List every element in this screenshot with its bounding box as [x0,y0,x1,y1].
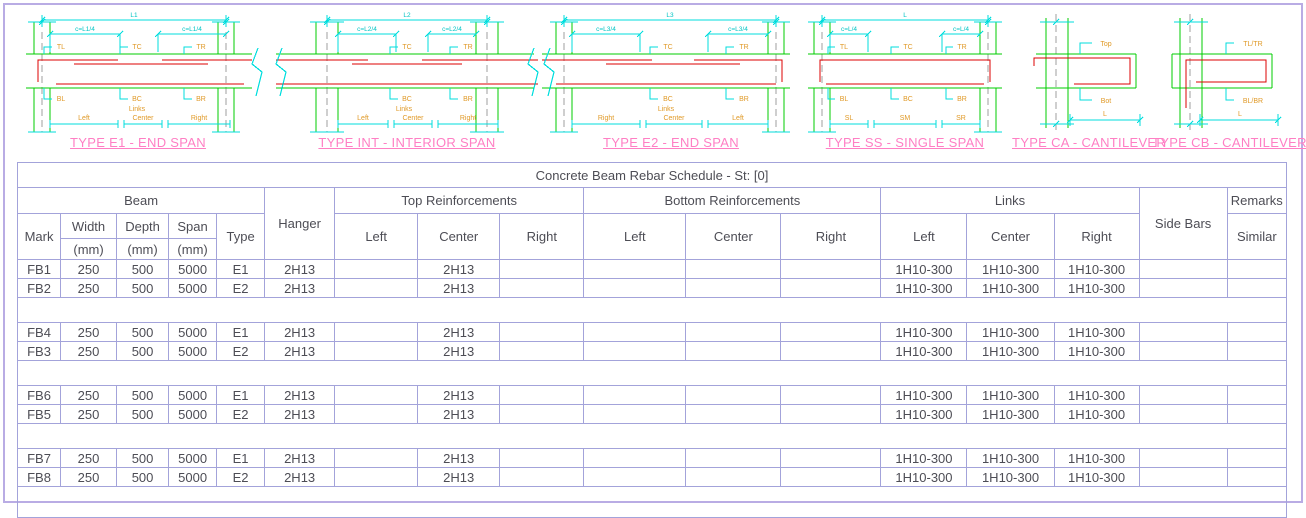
label-bot-center: BC [402,96,412,103]
cell-top-center: 2H13 [418,260,500,279]
beam-diagram-ca: Top Bot L TYPE CA - CANTILEVER [1012,8,1148,150]
cell-bot-right [781,468,881,487]
cell-links-right: 1H10-300 [1054,260,1139,279]
label-top-right: TR [196,44,205,51]
cell-bot-center [686,260,781,279]
cell-similar [1227,405,1286,424]
cell-span: 5000 [169,449,217,468]
cell-side-bars [1139,279,1227,298]
cell-top-left [335,260,418,279]
cell-top-right [500,405,584,424]
column-header-depth: Depth [117,214,169,239]
cell-span: 5000 [169,468,217,487]
cell-mark: FB5 [18,405,61,424]
spacer-row [18,424,1287,449]
cell-bot-center [686,342,781,361]
cell-hanger: 2H13 [265,468,335,487]
column-header-side-bars: Side Bars [1139,188,1227,260]
cell-type: E2 [217,342,265,361]
beam-drawing-e2: TC TR BC BR Links Right Center Left L3 c… [540,8,802,134]
concrete-outline [1036,18,1136,128]
column-header-hanger: Hanger [265,188,335,260]
rebar-labels: TC TR BC BR Links Left Center Right [357,44,476,122]
cell-top-right [500,449,584,468]
cell-bot-center [686,279,781,298]
cell-links-center: 1H10-300 [967,386,1054,405]
label-cut-right: c=L3/4 [728,26,748,33]
label-span: L3 [666,12,674,19]
spacer-row [18,361,1287,386]
beam-type-diagrams: TL TC TR BL BC BR Links Left Center Righ… [0,6,1306,158]
spacer-cell [18,298,1287,323]
beam-drawing-ca: Top Bot L [1012,8,1148,134]
cell-type: E1 [217,260,265,279]
label-top-right: TR [957,44,966,51]
table-row: FB82505005000E22H132H131H10-3001H10-3001… [18,468,1287,487]
cell-span: 5000 [169,342,217,361]
cell-bot-left [584,449,686,468]
cell-depth: 500 [117,260,169,279]
label-zone-right: Left [732,115,744,122]
cell-span: 5000 [169,279,217,298]
cell-side-bars [1139,468,1227,487]
cell-mark: FB7 [18,449,61,468]
cell-depth: 500 [117,342,169,361]
cell-top-center: 2H13 [418,279,500,298]
rebar-labels: Top Bot L [1100,41,1111,118]
cell-links-center: 1H10-300 [967,405,1054,424]
cell-mark: FB6 [18,386,61,405]
column-header-bottom-left: Left [584,214,686,260]
diagram-caption-int: TYPE INT - INTERIOR SPAN [272,135,542,150]
cell-side-bars [1139,386,1227,405]
cell-hanger: 2H13 [265,323,335,342]
cell-depth: 500 [117,279,169,298]
column-header-top-center: Center [418,214,500,260]
column-header-links-center: Center [967,214,1054,260]
rebar-labels: TC TR BC BR Links Right Center Left [598,44,749,122]
break-mark [528,48,538,96]
cell-top-left [335,449,418,468]
cell-links-right: 1H10-300 [1054,405,1139,424]
cell-hanger: 2H13 [265,260,335,279]
cell-side-bars [1139,323,1227,342]
cell-hanger: 2H13 [265,279,335,298]
cell-top-center: 2H13 [418,405,500,424]
cell-mark: FB1 [18,260,61,279]
column-header-bottom-center: Center [686,214,781,260]
label-zone-center: SM [900,115,911,122]
cell-width: 250 [61,449,117,468]
label-top: Top [1100,41,1111,48]
dimension-labels: L3 c=L3/4 c=L3/4 [596,12,748,33]
label-bot-left: BL [57,96,66,103]
cell-links-right: 1H10-300 [1054,386,1139,405]
cell-top-right [500,386,584,405]
cell-width: 250 [61,468,117,487]
label-top-left: TL [840,44,848,51]
label-bot-center: BC [132,96,142,103]
table-row: FB42505005000E12H132H131H10-3001H10-3001… [18,323,1287,342]
cell-bot-center [686,323,781,342]
label-span: L [1103,111,1107,118]
label-zone-left: SL [845,115,854,122]
cell-depth: 500 [117,405,169,424]
cell-top-center: 2H13 [418,342,500,361]
spacer-row [18,487,1287,518]
beam-diagram-cb: TL/TR BL/BR L TYPE CB - CANTILEVER [1152,8,1300,150]
cell-mark: FB3 [18,342,61,361]
cell-hanger: 2H13 [265,342,335,361]
cell-type: E1 [217,323,265,342]
cell-mark: FB8 [18,468,61,487]
cell-links-right: 1H10-300 [1054,342,1139,361]
label-zone-right: Right [191,115,207,122]
cell-top-left [335,405,418,424]
diagram-caption-ca: TYPE CA - CANTILEVER [1012,135,1148,150]
beam-diagram-ss: TL TC TR BL BC BR SL SM SR L c=L/4 c=L/4… [800,8,1010,150]
cell-top-right [500,468,584,487]
cell-bot-right [781,342,881,361]
label-bot-right: BR [463,96,473,103]
cell-span: 5000 [169,323,217,342]
cell-span: 5000 [169,405,217,424]
label-zone-center: Center [402,115,424,122]
cell-width: 250 [61,279,117,298]
beam-drawing-e1: TL TC TR BL BC BR Links Left Center Righ… [12,8,264,134]
cell-links-left: 1H10-300 [881,468,967,487]
column-header-links-left: Left [881,214,967,260]
rebar-schedule-table: Concrete Beam Rebar Schedule - St: [0] B… [17,162,1287,518]
cell-similar [1227,279,1286,298]
label-span: L [903,12,907,19]
label-cut-left: c=L1/4 [75,26,95,33]
cell-links-left: 1H10-300 [881,342,967,361]
dimension-labels: L c=L/4 c=L/4 [841,12,969,33]
label-bot-left: BL [840,96,849,103]
cell-top-left [335,323,418,342]
table-row: FB22505005000E22H132H131H10-3001H10-3001… [18,279,1287,298]
spacer-cell [18,361,1287,386]
cell-side-bars [1139,449,1227,468]
cell-links-right: 1H10-300 [1054,449,1139,468]
cell-bot-right [781,449,881,468]
break-mark [252,48,262,96]
column-header-top-right: Right [500,214,584,260]
cell-bot-left [584,386,686,405]
label-bot-center: BC [903,96,913,103]
rebar-lines [820,60,990,84]
label-bot-right: BR [739,96,749,103]
cell-top-right [500,260,584,279]
spacer-row [18,298,1287,323]
label-top-right: TR [739,44,748,51]
cell-similar [1227,342,1286,361]
rebar-lines [38,60,252,84]
dimension-labels: L1 c=L1/4 c=L1/4 [75,12,202,33]
cell-top-left [335,342,418,361]
column-header-links-right: Right [1054,214,1139,260]
cell-links-right: 1H10-300 [1054,323,1139,342]
cell-top-left [335,468,418,487]
rebar-labels: TL TC TR BL BC BR SL SM SR [840,44,967,122]
cell-hanger: 2H13 [265,386,335,405]
cell-type: E2 [217,279,265,298]
cell-width: 250 [61,386,117,405]
column-header-span: Span [169,214,217,239]
cell-links-left: 1H10-300 [881,386,967,405]
cell-depth: 500 [117,468,169,487]
cell-depth: 500 [117,323,169,342]
spacer-cell [18,424,1287,449]
cell-mark: FB4 [18,323,61,342]
break-mark [544,48,554,96]
label-top-center: TC [132,44,141,51]
cell-bot-left [584,405,686,424]
cell-links-center: 1H10-300 [967,449,1054,468]
cell-bot-left [584,323,686,342]
cell-bot-left [584,279,686,298]
label-top-center: TC [402,44,411,51]
cell-links-left: 1H10-300 [881,279,967,298]
cell-type: E2 [217,468,265,487]
cell-links-left: 1H10-300 [881,405,967,424]
label-zone-left: Right [598,115,614,122]
cell-similar [1227,386,1286,405]
beam-drawing-int: TC TR BC BR Links Left Center Right L2 c… [272,8,542,134]
cell-bot-left [584,342,686,361]
cell-top-right [500,279,584,298]
cell-type: E1 [217,386,265,405]
cell-top-center: 2H13 [418,468,500,487]
label-bot-right: BR [957,96,967,103]
cell-hanger: 2H13 [265,449,335,468]
cell-depth: 500 [117,449,169,468]
group-header-remarks: Remarks [1227,188,1286,214]
label-zone-right: Right [460,115,476,122]
label-span: L [1238,111,1242,118]
rebar-labels: TL/TR BL/BR L [1238,41,1263,118]
cell-bot-right [781,279,881,298]
column-header-type: Type [217,214,265,260]
table-row: FB62505005000E12H132H131H10-3001H10-3001… [18,386,1287,405]
concrete-outline [1172,18,1272,128]
cell-links-center: 1H10-300 [967,342,1054,361]
cell-top-right [500,323,584,342]
cell-bot-right [781,386,881,405]
table-row: FB12505005000E12H132H131H10-3001H10-3001… [18,260,1287,279]
cell-bot-center [686,386,781,405]
cell-links-center: 1H10-300 [967,279,1054,298]
cell-similar [1227,468,1286,487]
cell-links-right: 1H10-300 [1054,468,1139,487]
label-zone-center: Center [663,115,685,122]
cell-side-bars [1139,342,1227,361]
label-cut-left: c=L3/4 [596,26,616,33]
cell-hanger: 2H13 [265,405,335,424]
cell-span: 5000 [169,260,217,279]
cell-links-center: 1H10-300 [967,260,1054,279]
label-top-center: TC [663,44,672,51]
schedule-body: FB12505005000E12H132H131H10-3001H10-3001… [18,260,1287,518]
cell-width: 250 [61,405,117,424]
cell-links-right: 1H10-300 [1054,279,1139,298]
unit-header-width-mm: (mm) [61,239,117,260]
cell-bot-center [686,405,781,424]
label-bot: BL/BR [1243,98,1263,105]
cell-top-left [335,279,418,298]
label-top: TL/TR [1243,41,1262,48]
label-zone-left: Left [78,115,90,122]
beam-diagram-int: TC TR BC BR Links Left Center Right L2 c… [272,8,542,150]
group-header-links: Links [881,188,1139,214]
label-zone-right: SR [956,115,966,122]
cell-bot-right [781,260,881,279]
cell-width: 250 [61,342,117,361]
cell-bot-left [584,260,686,279]
cell-links-left: 1H10-300 [881,260,967,279]
spacer-cell [18,487,1287,518]
cell-width: 250 [61,323,117,342]
cell-bot-right [781,405,881,424]
label-cut-left: c=L2/4 [357,26,377,33]
label-links: Links [129,106,146,113]
label-zone-center: Center [132,115,154,122]
beam-drawing-ss: TL TC TR BL BC BR SL SM SR L c=L/4 c=L/4 [800,8,1010,134]
diagram-caption-ss: TYPE SS - SINGLE SPAN [800,135,1010,150]
cell-side-bars [1139,260,1227,279]
rebar-lines [1034,58,1130,84]
label-span: L1 [130,12,138,19]
cell-top-center: 2H13 [418,323,500,342]
table-row: FB32505005000E22H132H131H10-3001H10-3001… [18,342,1287,361]
cell-similar [1227,260,1286,279]
column-header-width: Width [61,214,117,239]
cell-depth: 500 [117,386,169,405]
group-header-bottom-reinforcements: Bottom Reinforcements [584,188,881,214]
cell-links-center: 1H10-300 [967,468,1054,487]
label-top-right: TR [463,44,472,51]
beam-diagram-e2: TC TR BC BR Links Right Center Left L3 c… [540,8,802,150]
diagram-caption-e2: TYPE E2 - END SPAN [540,135,802,150]
column-header-bottom-right: Right [781,214,881,260]
unit-header-depth-mm: (mm) [117,239,169,260]
rebar-labels: TL TC TR BL BC BR Links Left Center Righ… [57,44,208,122]
unit-header-span-mm: (mm) [169,239,217,260]
cell-links-left: 1H10-300 [881,449,967,468]
label-links: Links [396,106,413,113]
label-top-center: TC [903,44,912,51]
label-cut-right: c=L/4 [953,26,969,33]
table-title: Concrete Beam Rebar Schedule - St: [0] [18,163,1287,188]
cell-bot-left [584,468,686,487]
cell-bot-right [781,323,881,342]
cell-similar [1227,323,1286,342]
cell-similar [1227,449,1286,468]
cell-span: 5000 [169,386,217,405]
label-span: L2 [403,12,411,19]
table-row: FB72505005000E12H132H131H10-3001H10-3001… [18,449,1287,468]
label-links: Links [658,106,675,113]
rebar-lines [542,60,782,84]
cell-top-right [500,342,584,361]
beam-diagram-e1: TL TC TR BL BC BR Links Left Center Righ… [12,8,264,150]
table-row: FB52505005000E22H132H131H10-3001H10-3001… [18,405,1287,424]
diagram-caption-e1: TYPE E1 - END SPAN [12,135,264,150]
cell-top-left [335,386,418,405]
label-top-left: TL [57,44,65,51]
rebar-lines [276,60,538,84]
column-header-mark: Mark [18,214,61,260]
column-header-similar: Similar [1227,214,1286,260]
cell-links-center: 1H10-300 [967,323,1054,342]
group-header-beam: Beam [18,188,265,214]
group-header-top-reinforcements: Top Reinforcements [335,188,584,214]
label-cut-left: c=L/4 [841,26,857,33]
cell-bot-center [686,468,781,487]
label-zone-left: Left [357,115,369,122]
cell-top-center: 2H13 [418,449,500,468]
cell-top-center: 2H13 [418,386,500,405]
cell-side-bars [1139,405,1227,424]
cell-width: 250 [61,260,117,279]
label-bot-center: BC [663,96,673,103]
beam-drawing-cb: TL/TR BL/BR L [1152,8,1300,134]
cell-type: E2 [217,405,265,424]
cell-type: E1 [217,449,265,468]
cell-bot-center [686,449,781,468]
column-header-top-left: Left [335,214,418,260]
label-bot: Bot [1101,98,1112,105]
cell-mark: FB2 [18,279,61,298]
label-cut-right: c=L2/4 [442,26,462,33]
break-mark [276,48,286,96]
cell-links-left: 1H10-300 [881,323,967,342]
diagram-caption-cb: TYPE CB - CANTILEVER [1152,135,1300,150]
label-cut-right: c=L1/4 [182,26,202,33]
dimension-labels: L2 c=L2/4 c=L2/4 [357,12,462,33]
label-bot-right: BR [196,96,206,103]
